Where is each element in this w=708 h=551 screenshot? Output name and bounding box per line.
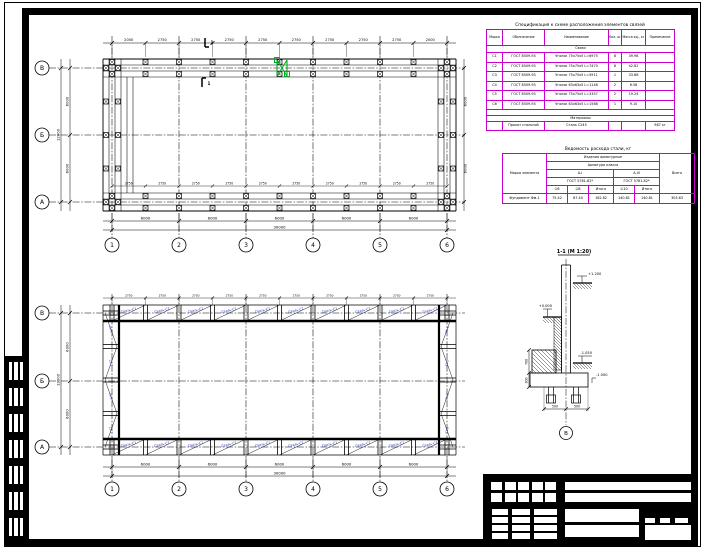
steel-col: ∅6 [547, 186, 568, 194]
side-stamp-cell [20, 492, 24, 510]
hatch-line [549, 350, 556, 357]
brace-label: Св-2 [444, 426, 450, 434]
axis-letter: В [40, 310, 44, 317]
dim-label: 2750 [191, 38, 201, 42]
title-block [483, 474, 698, 544]
spec-footer-cell [487, 122, 503, 131]
spec-data-cell: Уголок 75х75х5 L=3357 [545, 91, 609, 101]
steel-row-cell: Фундамент Фм-1 [503, 194, 547, 204]
dim-label: 2750 [226, 294, 234, 298]
level-label: +0.000 [539, 304, 553, 308]
spec-data-row: С4ГОСТ 8509-93Уголок 63х63х5 L=114826.58 [487, 81, 675, 91]
dim-label: 2750 [159, 294, 167, 298]
title-block-cell [545, 493, 556, 502]
dim-label: 2750 [125, 182, 133, 186]
dim-label: 500 [574, 404, 580, 408]
dim-label: 6000 [409, 461, 419, 466]
axis-letter: Б [40, 378, 44, 385]
spec-data-cell: ГОСТ 8509-93 [503, 53, 545, 63]
dim-label: 2750 [192, 294, 200, 298]
title-block-cell [512, 517, 530, 523]
hatch-line [554, 361, 562, 369]
title-block-cell [518, 482, 529, 490]
dim-label: 6000 [463, 163, 468, 173]
steel-row-cell: 140.81 [614, 194, 635, 204]
spec-data-cell: С6 [487, 100, 503, 110]
brace-label: Св-2 [108, 426, 114, 434]
title-block-cell [534, 525, 557, 531]
dim-label: 2750 [225, 38, 235, 42]
dim-total-label: 30000 [273, 470, 286, 475]
hatch-line [554, 352, 562, 360]
spec-data-cell [646, 81, 675, 91]
title-block-cell [491, 482, 502, 490]
spec-data-cell [646, 100, 675, 110]
hatch-line [554, 364, 560, 370]
drawing-sheet: 2000275027502750275027502750275027502000… [0, 0, 708, 551]
hatch-line [582, 363, 588, 369]
steel-table: Ведомость расхода стали, кг Марка элемен… [502, 146, 694, 204]
spec-data-cell: Уголок 63х63х5 L=1588 [545, 100, 609, 110]
spec-data-cell: 2 [609, 91, 622, 101]
steel-row-cell: 140.81 [635, 194, 660, 204]
title-block-cell [645, 525, 691, 540]
hatch-line [582, 283, 588, 289]
side-stamp-cell [14, 440, 18, 458]
spec-data-cell: С2 [487, 62, 503, 72]
spec-data-cell: 8 [609, 53, 622, 63]
steel-col: Итого [635, 186, 660, 194]
steel-group2: А-III [614, 170, 660, 178]
spec-table: Спецификация к схеме расположения элемен… [486, 22, 674, 131]
dim-label: 2750 [326, 182, 334, 186]
dim-label: 6000 [208, 215, 218, 220]
spec-data-cell: ГОСТ 8509-93 [503, 91, 545, 101]
side-stamp-cell [20, 362, 24, 380]
hatch-line [554, 334, 562, 342]
hatch-line [573, 283, 579, 289]
side-stamp-cell [14, 362, 18, 380]
hatch-line [543, 317, 549, 323]
hatch-line [532, 353, 552, 373]
axis-number: 1 [110, 242, 114, 249]
side-stamp-block [5, 356, 25, 546]
hatch-line [554, 322, 562, 330]
axis-letter: Б [40, 132, 44, 139]
title-block-cell [492, 517, 508, 523]
steel-gost1: ГОСТ 5781-82* [547, 178, 614, 186]
foundation-slab [530, 373, 588, 387]
hatch-line [573, 286, 576, 289]
dim-label: 2750 [259, 182, 267, 186]
title-block-cell [492, 509, 508, 515]
hatch-line [573, 363, 579, 369]
title-block-cell [534, 509, 557, 515]
spec-footer-cell [622, 122, 646, 131]
steel-col: ∅10 [614, 186, 635, 194]
spec-data-cell: 42.82 [622, 62, 646, 72]
title-block-cell [534, 517, 557, 523]
hatch-line [552, 317, 558, 323]
dim-label: 700 [525, 359, 529, 365]
title-block-cell [675, 518, 688, 523]
spec-footer-cell: Сталь С245 [545, 122, 609, 131]
dim-label: 6000 [409, 215, 419, 220]
spec-header-cell: Примечание [646, 30, 675, 46]
spec-header-row: МаркаОбозначениеНаименованиеКол. шт.Масс… [487, 30, 675, 46]
dim-label: 2750 [426, 182, 434, 186]
hatch-line [555, 317, 561, 323]
title-block-cell [565, 525, 639, 537]
brace-label: Св-2 [444, 326, 450, 334]
axis-number: 2 [177, 242, 181, 249]
axis-number: 5 [378, 242, 382, 249]
title-block-cell [534, 533, 557, 539]
steel-row-cell: 87.40 [568, 194, 589, 204]
spec-data-cell [646, 53, 675, 63]
title-block-cell [492, 533, 508, 539]
axis-number: 5 [378, 486, 382, 493]
dim-label: 2000 [124, 38, 134, 42]
hatch-line [576, 283, 582, 289]
side-stamp-cell [20, 414, 24, 432]
side-stamp-cell [9, 414, 13, 432]
spec-data-cell: С1 [487, 53, 503, 63]
dim-label: 6000 [65, 163, 70, 173]
side-stamp-cell [20, 440, 24, 458]
spec-header-cell: Обозначение [503, 30, 545, 46]
spec-data-cell: С5 [487, 91, 503, 101]
title-block-cell [532, 482, 543, 490]
spec-data-cell: ГОСТ 8509-93 [503, 81, 545, 91]
side-stamp-cell [14, 518, 18, 536]
brace-label: Св-2 [108, 359, 114, 367]
dim-label: 2750 [125, 294, 133, 298]
hatch-line [554, 325, 562, 333]
bolt-foot [572, 395, 581, 403]
side-stamp-cell [9, 362, 13, 380]
axis-number: 2 [177, 486, 181, 493]
section-mark-label: 1 [208, 81, 211, 86]
title-block-cell [565, 493, 691, 502]
side-stamp-cell [9, 440, 13, 458]
spec-group-row: Связи [487, 46, 675, 53]
dim-total-label: 12000 [56, 128, 61, 141]
title-block-cell [505, 482, 516, 490]
spec-data-cell: ГОСТ 8509-93 [503, 100, 545, 110]
dim-label: 2750 [158, 182, 166, 186]
dim-label: 6000 [275, 215, 285, 220]
steel-col: Итого [589, 186, 614, 194]
spec-data-cell: С4 [487, 81, 503, 91]
spec-data-cell: ГОСТ 8509-93 [503, 62, 545, 72]
spec-data-row: С3ГОСТ 8509-93Уголок 75х75х5 L=5911133.8… [487, 72, 675, 82]
title-block-cell [660, 518, 670, 523]
spec-data-cell: Уголок 75х75х5 L=5911 [545, 72, 609, 82]
steel-gost2: ГОСТ 5781-82* [614, 178, 660, 186]
spec-data-cell: С3 [487, 72, 503, 82]
spec-data-cell: 33.88 [622, 72, 646, 82]
spec-data-cell: Уголок 63х63х5 L=1148 [545, 81, 609, 91]
hatch-line [554, 343, 562, 351]
hatch-line [554, 328, 562, 336]
spec-header-cell: Наименование [545, 30, 609, 46]
spec-data-row: С1ГОСТ 8509-93Уголок 75х75х5 L=6975839.9… [487, 53, 675, 63]
section-mark-label: 1 [211, 40, 214, 45]
dim-label: 6000 [275, 461, 285, 466]
dim-label: 2750 [225, 182, 233, 186]
steel-col: ∅8 [568, 186, 589, 194]
side-stamp-cell [14, 414, 18, 432]
steel-row-cell: 162.82 [589, 194, 614, 204]
dim-label: 2750 [326, 294, 334, 298]
spec-footer-cell [609, 122, 622, 131]
hatch-line [585, 283, 591, 289]
dim-label: 6000 [208, 461, 218, 466]
side-stamp-cell [14, 492, 18, 510]
spec-data-cell: 19.24 [622, 91, 646, 101]
dim-label: 2750 [192, 182, 200, 186]
dim-label: 2750 [293, 294, 301, 298]
axis-number: 6 [445, 486, 449, 493]
title-block-cell [518, 493, 529, 502]
spec-data-row: С6ГОСТ 8509-93Уголок 63х63х5 L=158819.10 [487, 100, 675, 110]
side-stamp-cell [9, 466, 13, 484]
title-block-cell [645, 518, 655, 523]
title-block-cell [491, 493, 502, 502]
dim-label: 2750 [325, 38, 335, 42]
spec-data-cell: ГОСТ 8509-93 [503, 72, 545, 82]
bolt-foot [547, 395, 556, 403]
spec-data-row: С2ГОСТ 8509-93Уголок 75х75х5 L=7470842.8… [487, 62, 675, 72]
side-stamp-cell [20, 388, 24, 406]
dim-label: 2750 [292, 182, 300, 186]
spec-header-cell: Масса ед., кг [622, 30, 646, 46]
title-block-cell [512, 525, 530, 531]
spec-data-cell: Уголок 75х75х5 L=7470 [545, 62, 609, 72]
spec-data-cell [646, 91, 675, 101]
title-block-cell [492, 525, 508, 531]
dim-label: 6000 [141, 215, 151, 220]
spec-footer-cell: Прокат стальной [503, 122, 545, 131]
axis-number: 4 [311, 486, 315, 493]
spec-data-row: С5ГОСТ 8509-93Уголок 75х75х5 L=3357219.2… [487, 91, 675, 101]
dim-label: 2750 [359, 38, 369, 42]
title-block-cell [512, 509, 530, 515]
title-block-cell [505, 493, 516, 502]
hatch-line [532, 365, 540, 373]
brace-label: Св-2 [108, 326, 114, 334]
dim-total-label: 12000 [56, 373, 61, 386]
level-label: -1.050 [580, 351, 592, 355]
level-label: +1.200 [588, 272, 602, 276]
hatch-line [532, 357, 548, 373]
side-stamp-cell [9, 388, 13, 406]
dim-label: 6000 [65, 342, 70, 352]
steel-row-cell: 303.63 [660, 194, 695, 204]
dim-label: 6000 [65, 409, 70, 419]
hatch-line [579, 363, 585, 369]
hatch-line [532, 369, 536, 373]
axis-number: 4 [311, 242, 315, 249]
hatch-line [585, 363, 591, 369]
dim-label: 2750 [427, 294, 435, 298]
dim-label: 2750 [292, 38, 302, 42]
level-label: -1.500 [596, 373, 608, 377]
dim-label: 500 [552, 404, 558, 408]
side-stamp-cell [14, 466, 18, 484]
dim-label: 2750 [259, 294, 267, 298]
hatch-line [554, 337, 562, 345]
hatch-line [554, 331, 562, 339]
side-stamp-cell [20, 518, 24, 536]
axis-number: 3 [244, 242, 248, 249]
steel-row-cell: 75.42 [547, 194, 568, 204]
axis-number: 3 [244, 486, 248, 493]
title-block-cell [565, 509, 639, 522]
brace-label: Св-2 [108, 393, 114, 401]
spec-data-cell: 39.98 [622, 53, 646, 63]
dim-label: 2750 [393, 182, 401, 186]
spec-header-cell: Марка [487, 30, 503, 46]
hatch-line [546, 317, 552, 323]
axis-letter: В [564, 431, 568, 437]
steel-group1: А-I [547, 170, 614, 178]
hatch-line [576, 363, 582, 369]
hatch-line [543, 320, 546, 323]
spec-group-cell: Связи [487, 46, 675, 53]
hatch-line [554, 340, 562, 348]
title-block-cell [532, 493, 543, 502]
plan-top-view: 2000275027502750275027502750275027502000… [30, 16, 490, 268]
dim-label: 6000 [463, 96, 468, 106]
detail-title: 1-1 (М 1:20) [557, 249, 592, 255]
brace-label: Св-2 [444, 359, 450, 367]
dim-label: 300 [525, 377, 529, 383]
side-stamp-cell [20, 466, 24, 484]
spec-table-title: Спецификация к схеме расположения элемен… [486, 22, 674, 29]
dim-label: 2750 [359, 182, 367, 186]
spec-data-cell [646, 72, 675, 82]
dim-label: 6000 [141, 461, 151, 466]
spec-footer-cell: 987 кг [646, 122, 675, 131]
title-block-cell [565, 482, 691, 490]
brace-label: Св-2 [444, 393, 450, 401]
dim-label: 2750 [393, 294, 401, 298]
dim-label: 2750 [258, 38, 268, 42]
spec-data-cell: 1 [609, 72, 622, 82]
spec-header-cell: Кол. шт. [609, 30, 622, 46]
spec-data-cell [646, 62, 675, 72]
steel-left-header: Марка элемента [503, 154, 547, 194]
axis-number: 1 [110, 486, 114, 493]
steel-total-header: Всего [660, 154, 695, 194]
hatch-line [537, 350, 556, 369]
steel-table-title: Ведомость расхода стали, кг [502, 146, 694, 153]
hatch-line [579, 283, 585, 289]
dim-label: 6000 [342, 215, 352, 220]
spec-footer-row: Прокат стальнойСталь С245987 кг [487, 122, 675, 131]
dim-label: 2750 [360, 294, 368, 298]
steel-span2: Арматура класса [547, 162, 660, 170]
dim-label: 6000 [342, 461, 352, 466]
axis-number: 6 [445, 242, 449, 249]
dim-label: 6000 [65, 96, 70, 106]
dim-label: 2750 [392, 38, 402, 42]
dim-label: 2000 [426, 38, 436, 42]
spec-data-cell: Уголок 75х75х5 L=6975 [545, 53, 609, 63]
hatch-line [573, 366, 576, 369]
dim-label: 2750 [158, 38, 168, 42]
side-stamp-cell [9, 492, 13, 510]
axis-letter: В [40, 65, 44, 72]
side-stamp-cell [14, 388, 18, 406]
spec-data-cell: 9.10 [622, 100, 646, 110]
steel-span1: Изделия арматурные [547, 154, 660, 162]
title-block-cell [512, 533, 530, 539]
side-stamp-cell [9, 518, 13, 536]
plan-bottom-view: 2750275027502750275027502750275027502750… [30, 276, 490, 520]
spec-data-cell: 6.58 [622, 81, 646, 91]
spec-data-cell: 8 [609, 62, 622, 72]
section-detail: 1-1 (М 1:20)+1.200+0.000-1.050-1.5005005… [518, 243, 693, 455]
dim-total-label: 30000 [273, 224, 286, 229]
spec-data-cell: 2 [609, 81, 622, 91]
title-block-cell [545, 482, 556, 490]
spec-data-cell: 1 [609, 100, 622, 110]
